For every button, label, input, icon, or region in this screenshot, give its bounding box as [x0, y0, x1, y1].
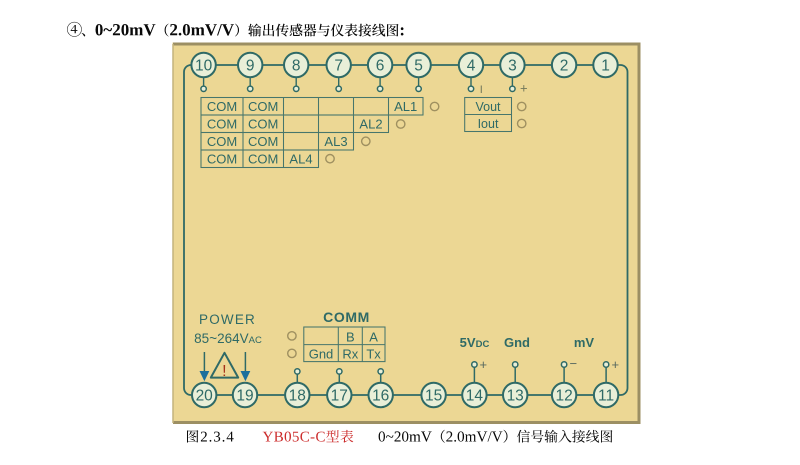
svg-text:I: I [480, 84, 483, 96]
svg-text:11: 11 [598, 388, 614, 405]
svg-text:COM: COM [248, 117, 278, 132]
svg-text:Gnd: Gnd [309, 347, 334, 362]
svg-text:COM: COM [248, 99, 278, 114]
svg-text:mV: mV [574, 335, 595, 350]
svg-text:1: 1 [601, 58, 610, 75]
svg-text:COM: COM [207, 117, 237, 132]
svg-text:−: − [570, 356, 578, 371]
svg-text:4: 4 [467, 58, 476, 75]
svg-text:17: 17 [331, 388, 348, 405]
svg-text:COM: COM [248, 134, 278, 149]
svg-text:10: 10 [195, 58, 213, 75]
svg-text:Rx: Rx [342, 347, 358, 362]
svg-text:+: + [480, 357, 488, 372]
svg-text:!: ! [222, 363, 226, 380]
svg-text:18: 18 [289, 388, 306, 405]
svg-text:12: 12 [555, 388, 572, 405]
svg-text:6: 6 [376, 58, 385, 75]
svg-text:9: 9 [246, 58, 255, 75]
svg-text:POWER: POWER [199, 312, 256, 327]
svg-text:8: 8 [292, 58, 301, 75]
svg-text:14: 14 [466, 388, 484, 405]
svg-text:AL1: AL1 [394, 99, 417, 114]
svg-text:A: A [369, 330, 378, 345]
svg-text:COMM: COMM [323, 309, 370, 325]
svg-text:COM: COM [248, 152, 278, 167]
svg-text:16: 16 [372, 388, 389, 405]
svg-text:Iout: Iout [478, 117, 499, 131]
svg-text:AL2: AL2 [359, 117, 382, 132]
svg-text:AL3: AL3 [324, 134, 347, 149]
svg-text:COM: COM [207, 99, 237, 114]
svg-text:COM: COM [207, 134, 237, 149]
svg-text:13: 13 [507, 388, 524, 405]
svg-text:B: B [346, 330, 355, 345]
svg-text:Tx: Tx [366, 347, 381, 362]
svg-text:Vout: Vout [475, 100, 501, 114]
svg-text:+: + [612, 357, 620, 372]
svg-text:7: 7 [334, 58, 343, 75]
svg-text:15: 15 [425, 388, 442, 405]
svg-text:2: 2 [560, 58, 569, 75]
svg-text:20: 20 [196, 388, 214, 405]
svg-text:COM: COM [207, 152, 237, 167]
svg-text:3: 3 [508, 58, 517, 75]
svg-text:+: + [520, 81, 528, 96]
svg-text:AL4: AL4 [289, 152, 312, 167]
svg-text:Gnd: Gnd [504, 335, 530, 350]
svg-text:19: 19 [236, 388, 253, 405]
svg-text:5: 5 [414, 58, 423, 75]
